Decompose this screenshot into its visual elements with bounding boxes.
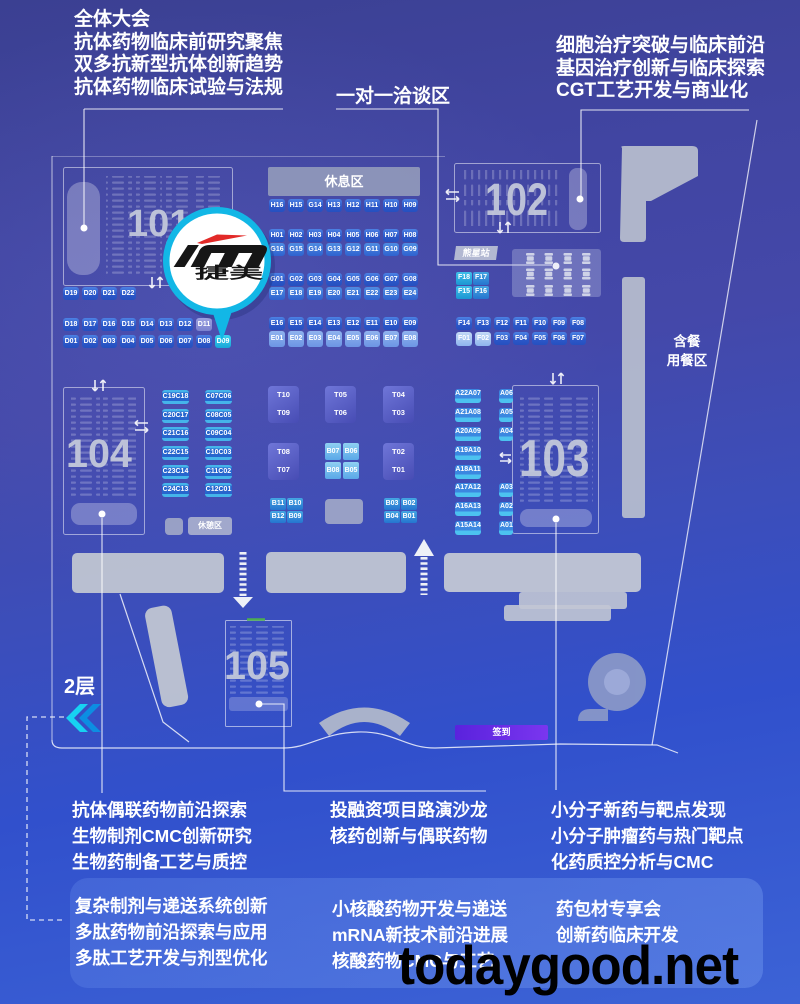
svg-text:捷美: 捷美 xyxy=(195,264,264,282)
